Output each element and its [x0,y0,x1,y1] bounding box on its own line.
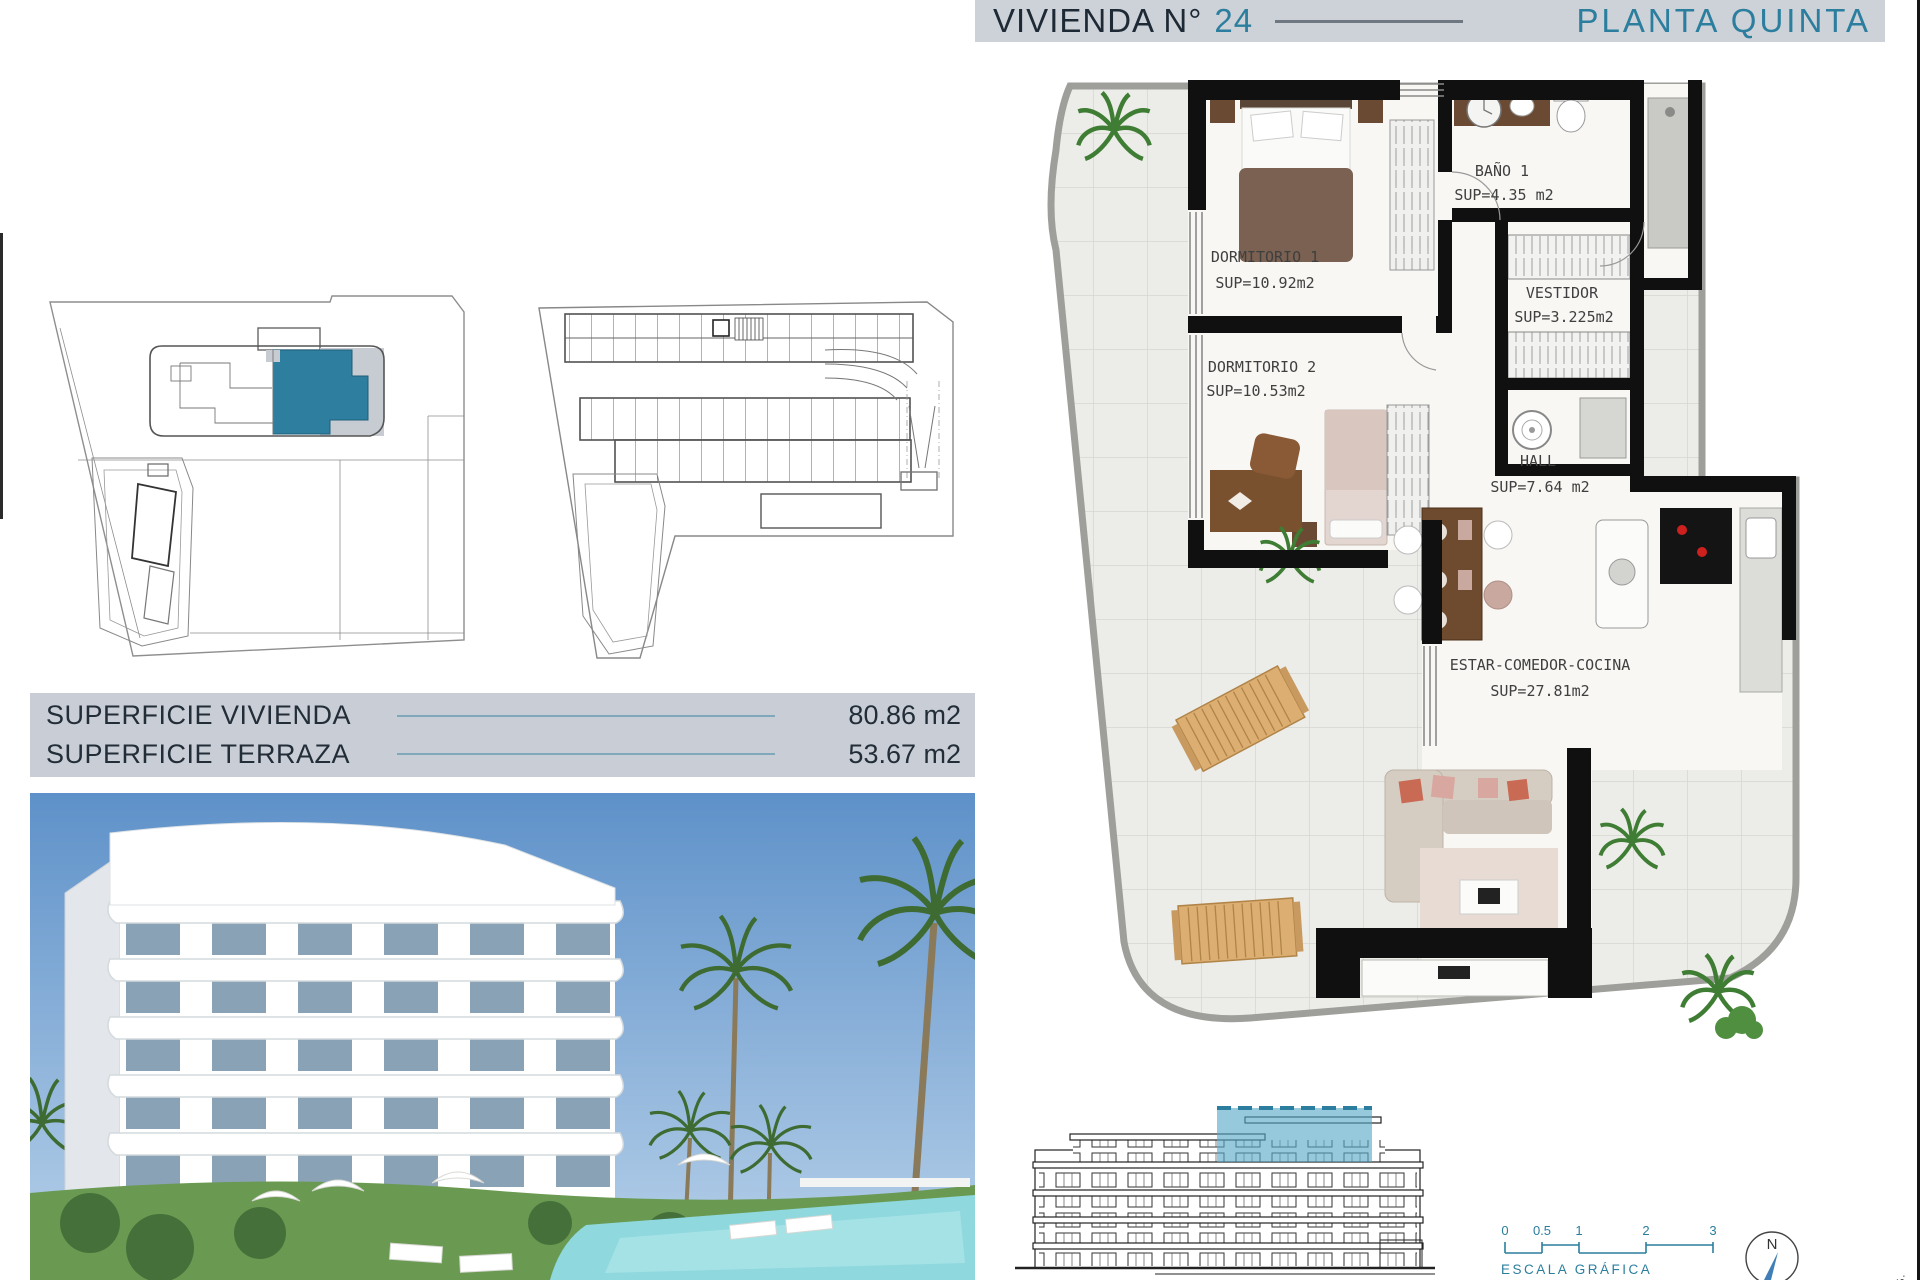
scale-tick: 0 [1501,1223,1508,1238]
building-footprint [150,346,384,436]
room-area: SUP=3.225m2 [1514,308,1613,326]
shower-icon [1648,98,1692,248]
room-area: SUP=4.35 m2 [1454,186,1553,204]
room-area: SUP=7.64 m2 [1490,478,1589,496]
scale-tick: 0.5 [1533,1223,1551,1238]
room-label: DORMITORIO 1 [1211,248,1319,266]
compass-needle-icon [1764,1252,1778,1280]
room-area: SUP=27.81m2 [1490,682,1589,700]
surface-value: 53.67 m2 [811,739,961,770]
floor-title: PLANTA QUINTA [1577,2,1872,40]
header-divider-line [1275,20,1463,23]
scale-bar-line [1505,1242,1713,1253]
tv-cabinet-icon [1362,960,1548,996]
graphic-scale: 0 0.5 1 2 3 ESCALA GRÁFICA [1495,1222,1730,1280]
site-location-plan [30,288,485,670]
room-label: BAÑO 1 [1475,161,1529,180]
room-label: ESTAR-COMEDOR-COCINA [1450,656,1631,674]
unit-title: VIVIENDA N° [993,2,1202,40]
unit-number: 24 [1214,2,1253,40]
surface-row: SUPERFICIE VIVIENDA 80.86 m2 [30,700,975,731]
surface-label: SUPERFICIE TERRAZA [46,739,391,770]
bush-icon [1715,1006,1763,1039]
north-compass: N [1738,1222,1808,1280]
room-area: SUP=10.53m2 [1206,382,1305,400]
surface-value: 80.86 m2 [811,700,961,731]
legal-disclaimer: PLANO SUJETO A POSIBLES CAMBIOS POR RAZO… [1896,1274,1908,1280]
surface-table: SUPERFICIE VIVIENDA 80.86 m2 SUPERFICIE … [30,693,975,777]
room-label: HALL [1520,452,1556,470]
scale-label: ESCALA GRÁFICA [1501,1262,1652,1277]
surface-row: SUPERFICIE TERRAZA 53.67 m2 [30,739,975,770]
surface-label: SUPERFICIE VIVIENDA [46,700,391,731]
room-label: DORMITORIO 2 [1208,358,1316,376]
scale-tick: 3 [1709,1223,1716,1238]
north-label: N [1767,1236,1778,1253]
dotted-leader-line [397,753,775,755]
plan-sheet: VIVIENDA N° 24 PLANTA QUINTA [0,0,1920,1280]
dotted-leader-line [397,715,775,717]
room-area: SUP=10.92m2 [1215,274,1314,292]
sheet-header: VIVIENDA N° 24 PLANTA QUINTA [975,0,1885,42]
sun-lounger-icon [1171,897,1304,964]
rendered-building [65,822,623,1228]
apartment-floor-plan: DORMITORIO 1 SUP=10.92m2 BAÑO 1 SUP=4.35… [1040,80,1800,1080]
highlighted-floor-overlay [1217,1108,1372,1162]
building-elevation [1015,1090,1435,1280]
page-left-border-mark [0,233,3,519]
building-render-photo [30,793,975,1280]
scale-tick: 2 [1642,1223,1649,1238]
garage-level-plan [525,286,975,666]
pool-parcel-outline [92,458,193,646]
room-label: VESTIDOR [1526,284,1599,302]
scale-tick: 1 [1575,1223,1582,1238]
